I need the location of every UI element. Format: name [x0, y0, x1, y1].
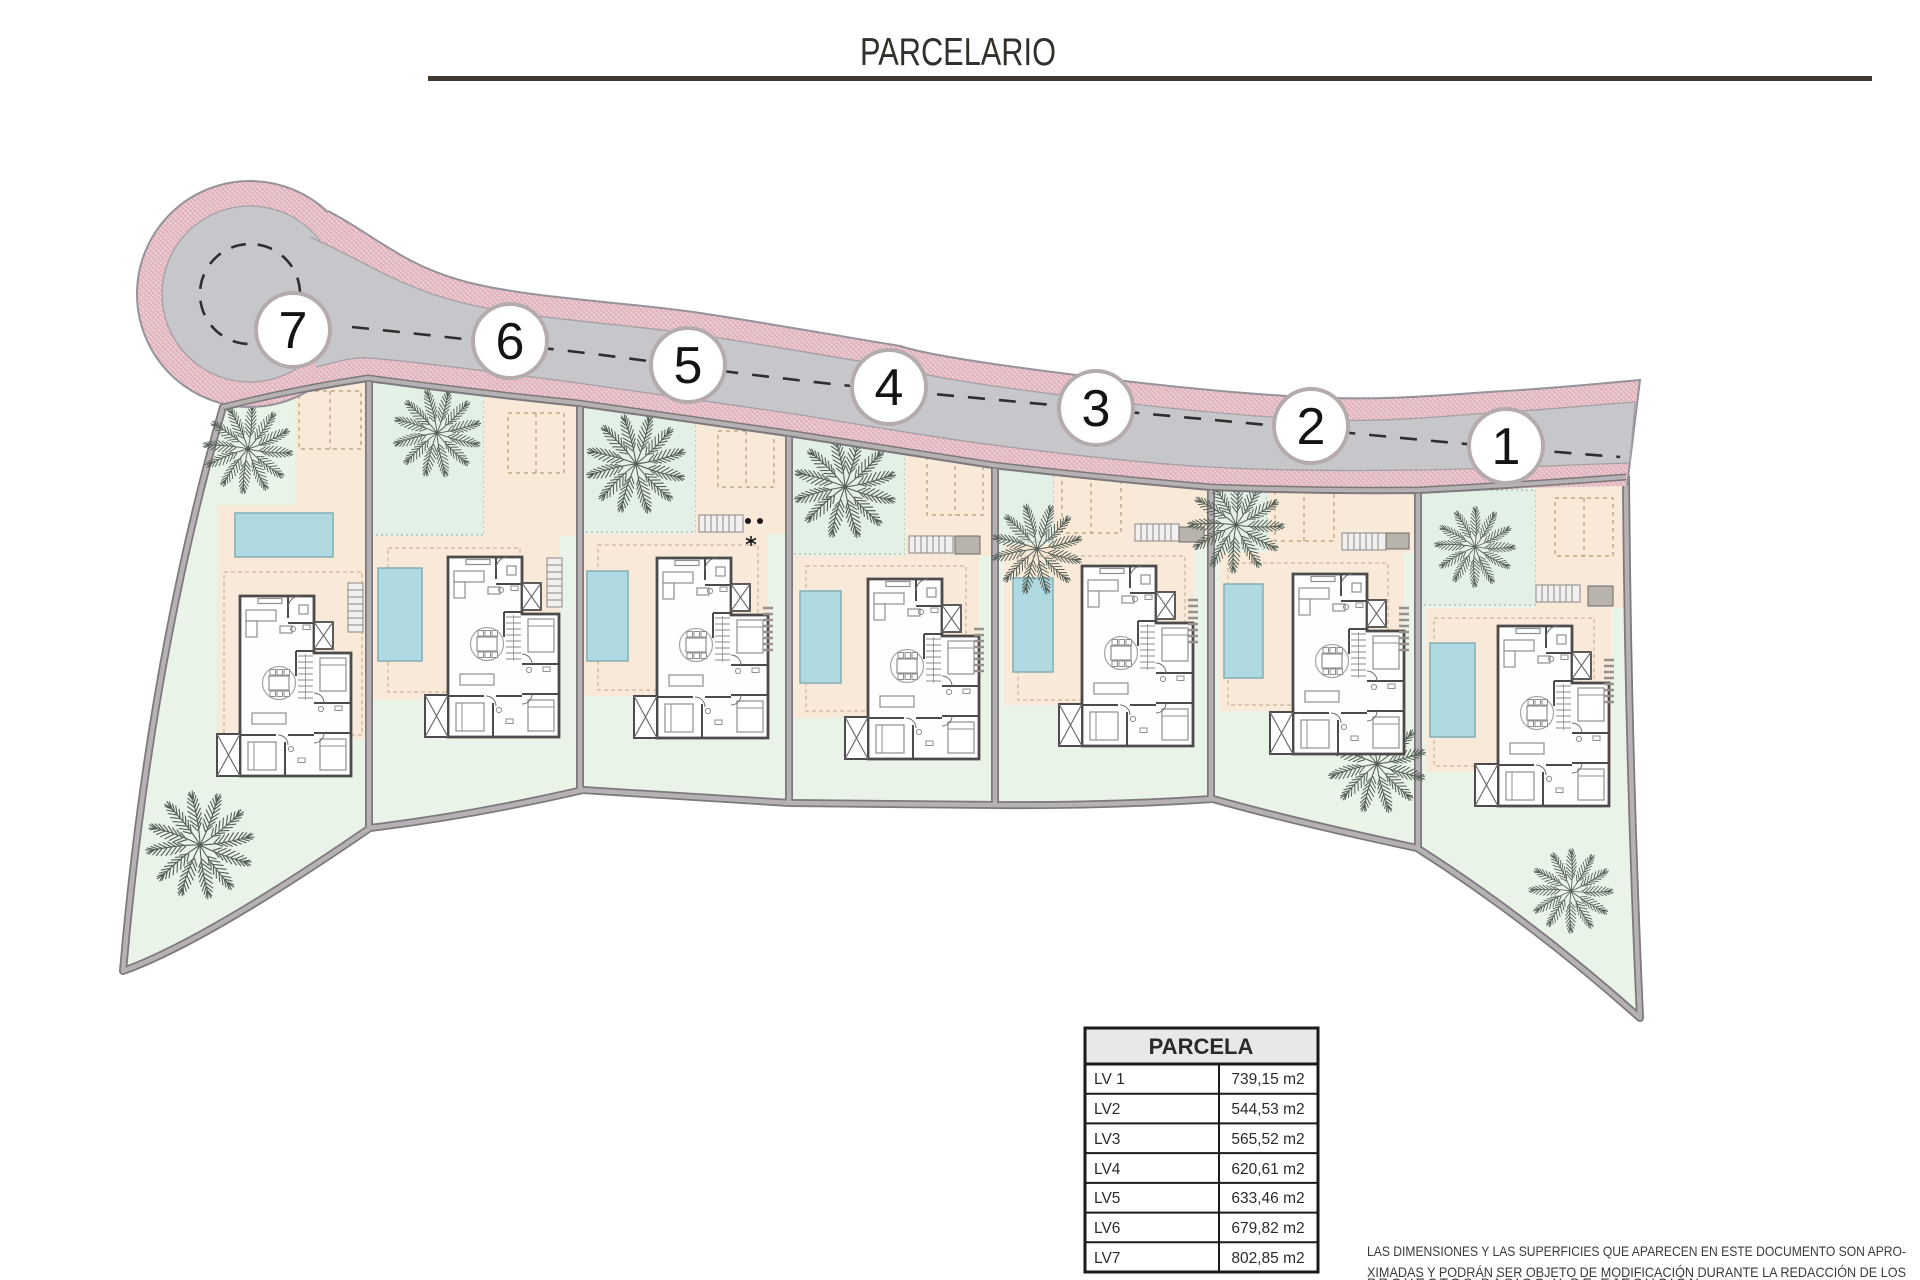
svg-text:7: 7 — [279, 302, 308, 360]
svg-text:LAS DIMENSIONES Y LAS SUPERFIC: LAS DIMENSIONES Y LAS SUPERFICIES QUE AP… — [1367, 1243, 1906, 1259]
svg-text:LV5: LV5 — [1094, 1190, 1120, 1207]
svg-text:6: 6 — [496, 313, 525, 371]
svg-text:LV7: LV7 — [1094, 1250, 1120, 1267]
svg-text:620,61 m2: 620,61 m2 — [1231, 1161, 1304, 1178]
svg-text:PROYECTOS BÁSICO Y DE EJECUCIÓ: PROYECTOS BÁSICO Y DE EJECUCIÓN. — [1367, 1275, 1705, 1280]
svg-text:565,52 m2: 565,52 m2 — [1231, 1131, 1304, 1148]
svg-text:LV 1: LV 1 — [1094, 1071, 1125, 1088]
svg-text:739,15 m2: 739,15 m2 — [1231, 1071, 1304, 1088]
svg-text:LV2: LV2 — [1094, 1101, 1120, 1118]
svg-text:LV4: LV4 — [1094, 1161, 1121, 1178]
svg-text:5: 5 — [674, 337, 703, 395]
svg-text:633,46 m2: 633,46 m2 — [1231, 1190, 1304, 1207]
svg-text:PARCELA: PARCELA — [1149, 1034, 1254, 1059]
svg-text:679,82 m2: 679,82 m2 — [1231, 1220, 1304, 1237]
svg-text:4: 4 — [875, 359, 904, 417]
svg-text:LV6: LV6 — [1094, 1220, 1120, 1237]
svg-text:PARCELARIO: PARCELARIO — [860, 31, 1056, 74]
svg-text:544,53 m2: 544,53 m2 — [1231, 1101, 1304, 1118]
svg-text:1: 1 — [1492, 418, 1521, 476]
svg-text:2: 2 — [1297, 398, 1326, 456]
svg-text:LV3: LV3 — [1094, 1131, 1120, 1148]
svg-text:3: 3 — [1082, 380, 1111, 438]
svg-text:802,85 m2: 802,85 m2 — [1231, 1250, 1304, 1267]
